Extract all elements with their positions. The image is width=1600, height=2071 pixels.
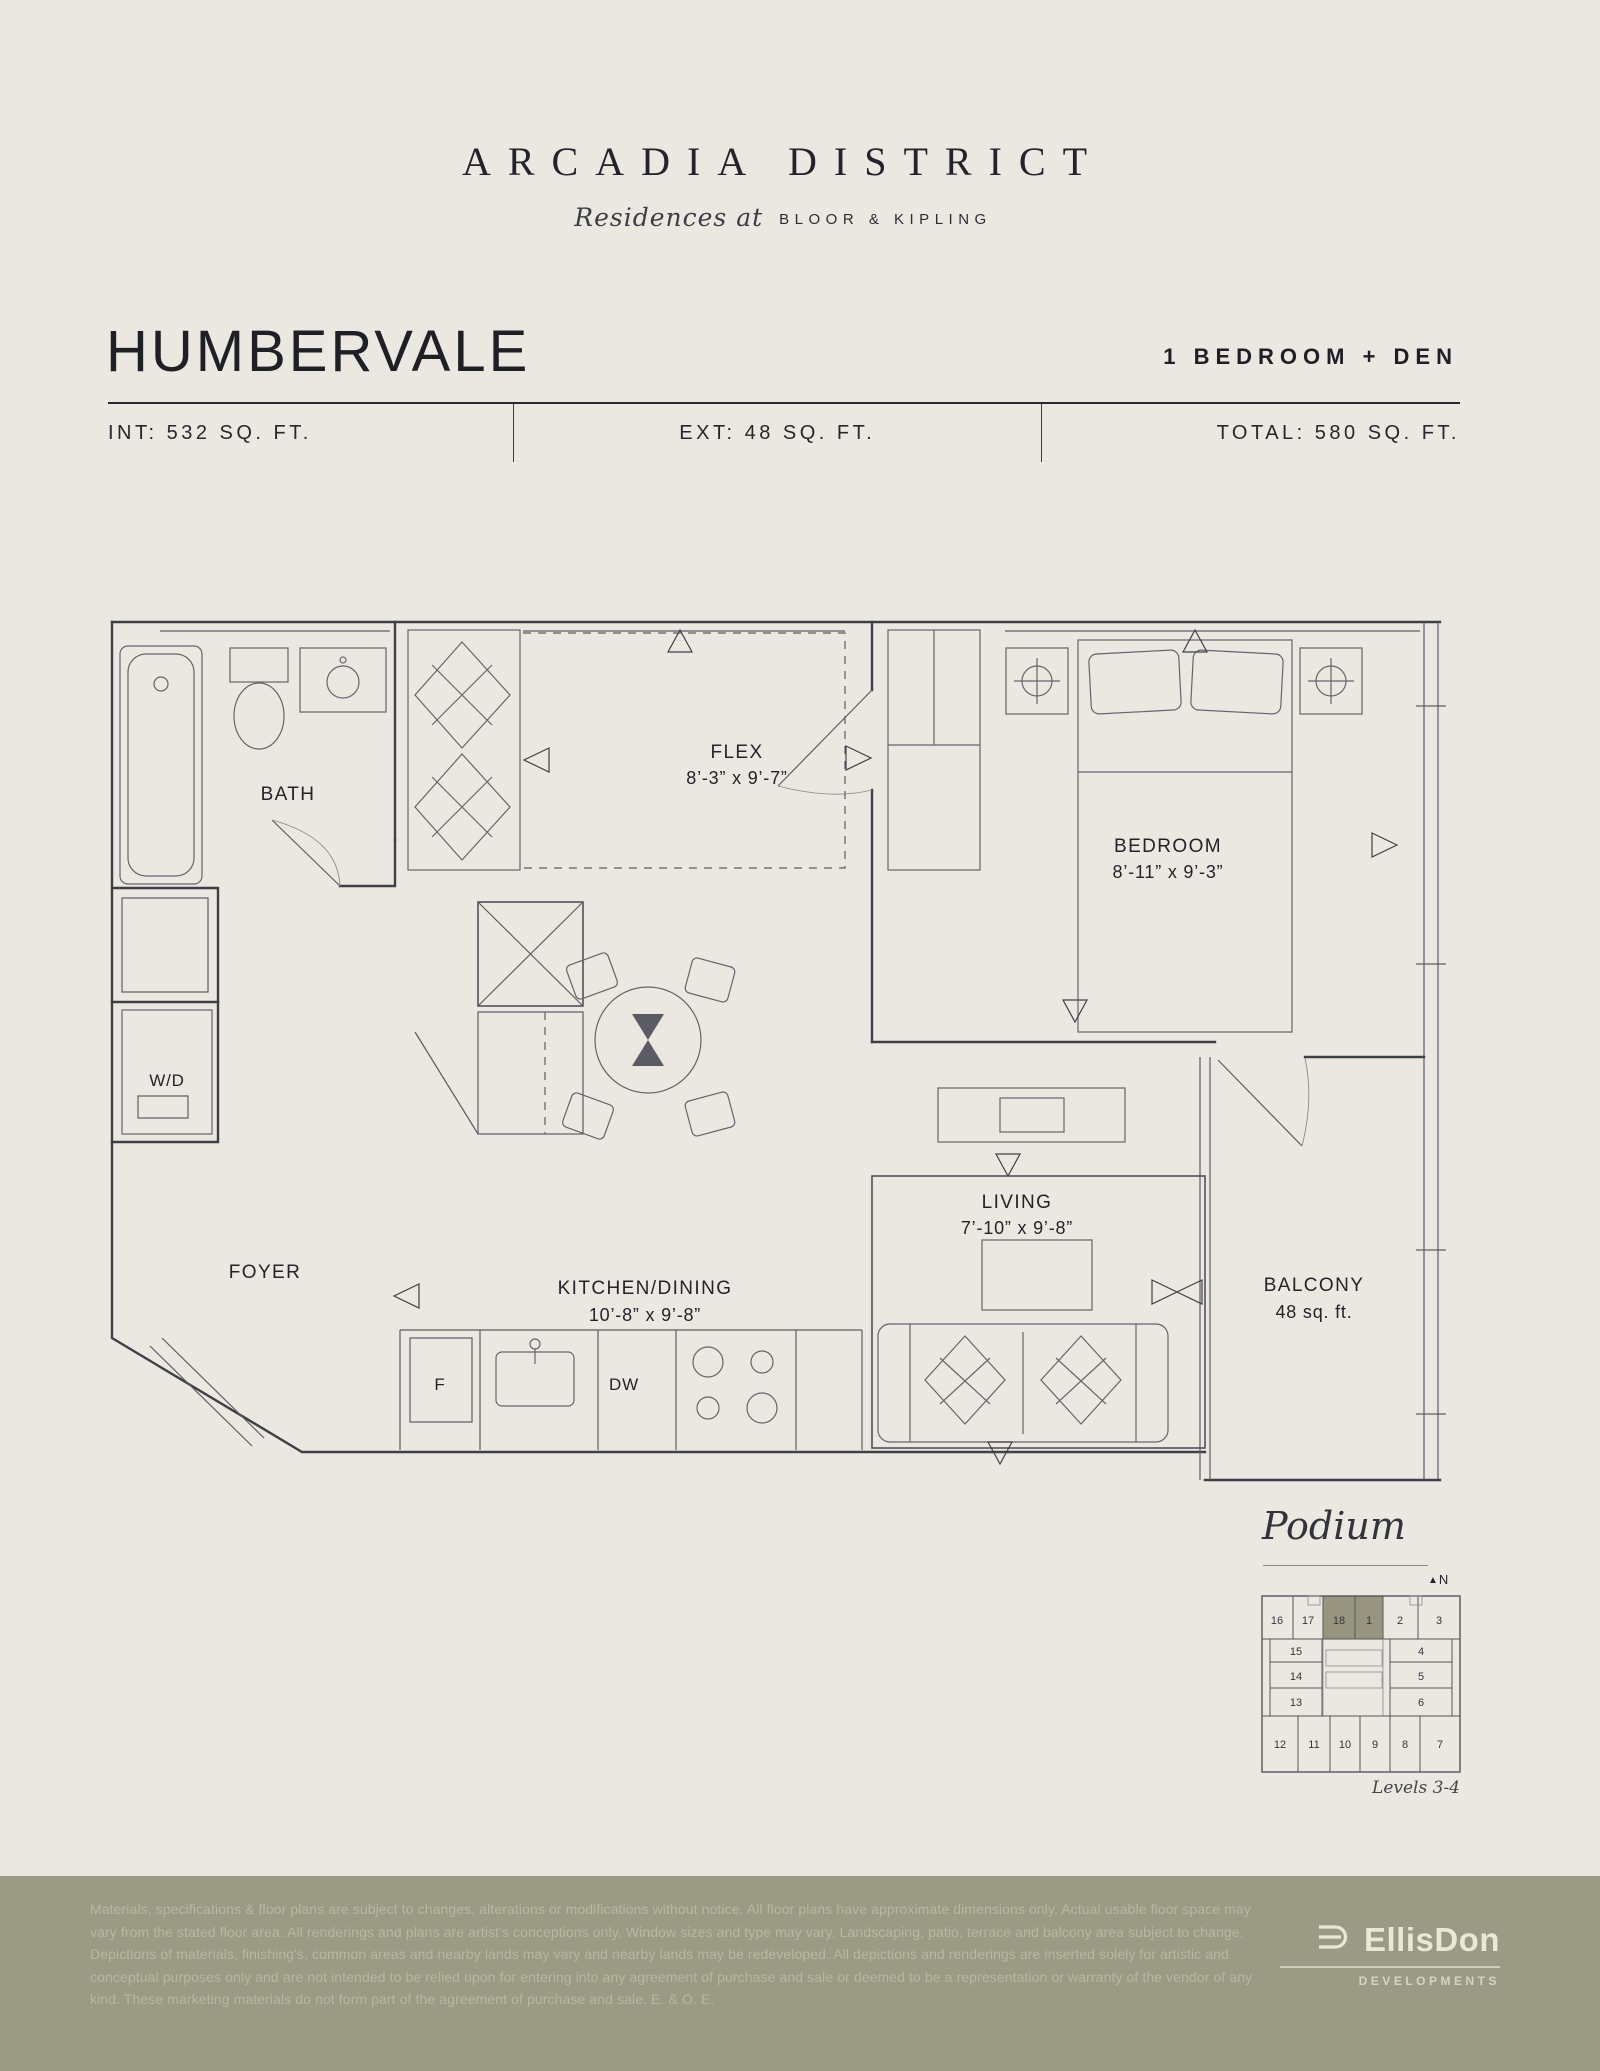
bedroom-label: BEDROOM	[1114, 836, 1222, 857]
stove	[693, 1347, 777, 1423]
bathroom-vanity	[300, 648, 386, 712]
flex-den-boundary	[523, 633, 845, 868]
balcony-area: 48 sq. ft.	[1275, 1302, 1352, 1322]
flex-daybed	[408, 630, 520, 870]
keyplan-drawing: 16 17 18 1 2 3 15 14 13 4 5 6 12 11 10 9…	[1260, 1594, 1462, 1779]
exterior-area: EXT: 48 SQ. FT.	[513, 404, 1042, 462]
fridge-label: F	[434, 1375, 445, 1394]
nightstand-right	[1300, 648, 1362, 714]
bedroom-closet	[888, 630, 980, 870]
keyplan-unit: 1	[1366, 1615, 1372, 1627]
nightstand-left	[1006, 648, 1068, 714]
keyplan-unit: 3	[1436, 1615, 1442, 1627]
keyplan-unit: 12	[1274, 1739, 1286, 1751]
keyplan-unit: 2	[1397, 1615, 1403, 1627]
doors	[150, 690, 1309, 1446]
north-indicator: ▲N	[1428, 1572, 1449, 1587]
north-label: N	[1439, 1572, 1449, 1587]
washer-dryer-label: W/D	[149, 1071, 184, 1090]
flex-label: FLEX	[710, 742, 763, 763]
balcony-label: BALCONY	[1264, 1275, 1365, 1296]
keyplan-title: Podium	[1262, 1504, 1406, 1548]
footer: Materials, specifications & floor plans …	[0, 1876, 1600, 2071]
coffee-table	[982, 1240, 1092, 1310]
logo-developments-label: DEVELOPMENTS	[1280, 1974, 1500, 1988]
interior-area: INT: 532 SQ. FT.	[108, 422, 513, 445]
unit-walls	[112, 622, 1446, 1480]
foyer-label: FOYER	[229, 1262, 301, 1283]
bath-label: BATH	[261, 784, 316, 805]
legal-disclaimer: Materials, specifications & floor plans …	[90, 1898, 1255, 2011]
keyplan-unit: 10	[1339, 1739, 1351, 1751]
kitchen-label: KITCHEN/DINING	[558, 1278, 733, 1299]
keyplan-divider	[1263, 1565, 1428, 1566]
keyplan-unit: 5	[1418, 1671, 1424, 1683]
plan-name: HUMBERVALE	[106, 318, 530, 385]
kitchen-dims: 10’-8” x 9’-8”	[589, 1305, 701, 1325]
floor-plan-drawing: BATH W/D FOYER FLEX 8’-3” x 9’-7” BEDROO…	[0, 600, 1600, 1500]
media-console	[938, 1088, 1125, 1142]
keyplan-unit: 8	[1402, 1739, 1408, 1751]
keyplan-unit: 11	[1308, 1739, 1319, 1751]
keyplan-levels: Levels 3-4	[1300, 1778, 1460, 1798]
keyplan-unit: 18	[1333, 1615, 1345, 1627]
bedroom-dims: 8’-11” x 9’-3”	[1113, 862, 1224, 882]
logo-divider	[1280, 1966, 1500, 1968]
linen-closet	[122, 898, 208, 992]
ellisdon-logo: EllisDon DEVELOPMENTS	[1280, 1920, 1500, 1988]
unit-type: 1 BEDROOM + DEN	[1163, 344, 1458, 370]
hall-closet	[415, 1012, 583, 1134]
north-arrow-icon: ▲	[1428, 1575, 1439, 1586]
ellisdon-wordmark: EllisDon	[1364, 1921, 1500, 1959]
keyplan-unit: 7	[1437, 1739, 1443, 1751]
total-area: TOTAL: 580 SQ. FT.	[1042, 422, 1461, 445]
ellisdon-mark-icon	[1315, 1920, 1355, 1959]
keyplan-unit: 16	[1271, 1615, 1283, 1627]
brand-tagline-location: BLOOR & KIPLING	[779, 211, 992, 228]
keyplan-unit: 14	[1290, 1671, 1302, 1683]
keyplan-unit: 13	[1290, 1697, 1302, 1709]
brand-tagline: Residences atBLOOR & KIPLING	[0, 201, 1566, 230]
dishwasher-label: DW	[609, 1375, 639, 1394]
living-dims: 7’-10” x 9’-8”	[961, 1218, 1073, 1238]
kitchen-sink	[496, 1339, 574, 1406]
keyplan-unit: 6	[1418, 1697, 1424, 1709]
dining-table	[561, 952, 736, 1141]
keyplan-unit: 17	[1302, 1615, 1314, 1627]
brand-title: ARCADIA DISTRICT	[0, 138, 1566, 185]
brand-header: ARCADIA DISTRICT Residences atBLOOR & KI…	[0, 138, 1566, 230]
keyplan-unit: 9	[1372, 1739, 1378, 1751]
floorplan-sheet: ARCADIA DISTRICT Residences atBLOOR & KI…	[0, 0, 1600, 2071]
area-stats-bar: INT: 532 SQ. FT. EXT: 48 SQ. FT. TOTAL: …	[108, 402, 1460, 462]
keyplan-unit: 15	[1290, 1646, 1302, 1658]
flex-dims: 8’-3” x 9’-7”	[686, 768, 787, 788]
keyplan-unit: 4	[1418, 1646, 1424, 1658]
toilet	[230, 648, 288, 749]
living-label: LIVING	[982, 1192, 1053, 1213]
brand-tagline-script: Residences at	[574, 203, 763, 232]
living-room-boundary	[872, 1176, 1205, 1448]
sofa	[878, 1324, 1168, 1442]
bathtub	[120, 646, 202, 884]
mechanical-shaft	[478, 902, 583, 1006]
